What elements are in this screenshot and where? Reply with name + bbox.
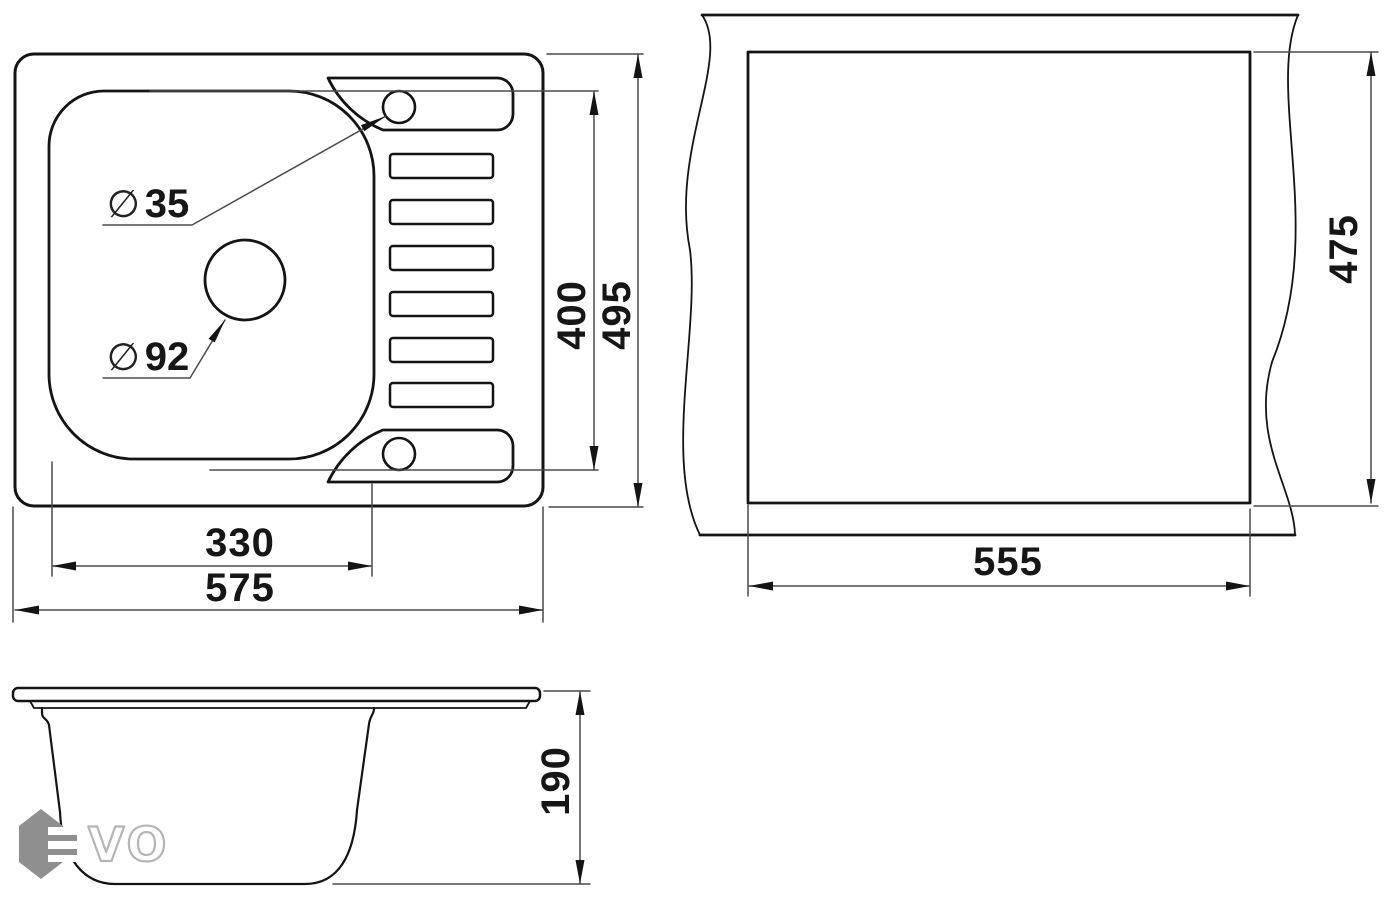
- dim-overall-length: 495: [597, 280, 637, 350]
- diameter-symbol: ∅: [107, 338, 140, 376]
- label-faucet-hole-diameter: ∅ 35: [107, 184, 190, 224]
- sink-bowl-outline: [49, 91, 374, 459]
- label-drain-hole-diameter: ∅ 92: [107, 337, 190, 377]
- cutout-dimension-arrows: [749, 52, 1376, 591]
- cutout-rectangle: [748, 52, 1250, 503]
- break-line-right: [1266, 15, 1298, 535]
- faucet-deck-bottom: [328, 430, 513, 482]
- break-line-left: [683, 15, 710, 535]
- drainboard-slots: [390, 154, 493, 407]
- logo-e-emblem: [48, 827, 77, 862]
- dim-bowl-width: 330: [205, 523, 275, 563]
- drain-hole: [205, 240, 285, 320]
- drawing-linework: VO: [0, 0, 1387, 900]
- dim-bowl-length: 400: [552, 280, 592, 350]
- diameter-symbol: ∅: [107, 185, 140, 223]
- sink-plan-view: [15, 54, 543, 506]
- dim-cutout-length: 475: [1324, 214, 1364, 284]
- cutout-dimension-lines: [748, 52, 1378, 596]
- faucet-hole-value: 35: [145, 184, 190, 224]
- countertop-cutout-view: [683, 15, 1298, 535]
- sink-outline: [15, 54, 543, 506]
- rim-flange: [13, 688, 540, 701]
- dim-cutout-width: 555: [973, 542, 1043, 582]
- faucet-hole-top: [383, 91, 415, 123]
- technical-drawing-sheet: VO 330 575 400 495 555 475 190 ∅ 35 ∅ 92: [0, 0, 1387, 900]
- dim-overall-width: 575: [205, 568, 275, 608]
- evo-logo: VO: [19, 809, 170, 879]
- drain-hole-value: 92: [145, 337, 190, 377]
- dim-depth: 190: [536, 746, 576, 816]
- faucet-hole-bottom: [383, 438, 415, 470]
- logo-text: VO: [88, 818, 170, 873]
